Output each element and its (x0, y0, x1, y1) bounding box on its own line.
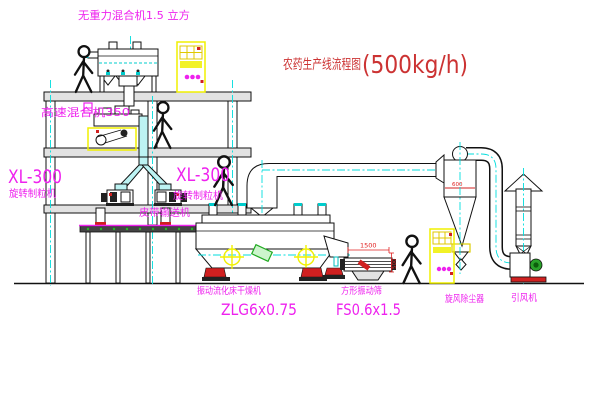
label-dryer-model: ZLG6x0.75 (221, 300, 297, 319)
label-granulator-left-name: 旋转制粒机 (9, 187, 56, 200)
process-flow-diagram: 无重力混合机1.5 立方 高速混合机350 XL-300 旋转制粒机 XL-30… (0, 0, 600, 403)
belt-conveyor (79, 208, 199, 283)
label-belt-conveyor: 皮带输送机 (139, 206, 190, 219)
label-granulator-left-model: XL-300 (8, 166, 62, 188)
label-gravity-free-mixer: 无重力混合机1.5 立方 (78, 8, 190, 22)
label-high-speed-mixer: 高速混合机350 (41, 105, 130, 119)
indicator-lights (185, 75, 201, 80)
page-title-capacity: (500kg/h) (362, 50, 468, 79)
label-dryer-name: 振动流化床干燥机 (197, 285, 261, 297)
induced-draft-fan (510, 253, 546, 282)
cyclone-separator (444, 142, 476, 274)
granulator-chute (115, 157, 171, 190)
person-figure (403, 236, 421, 283)
drawing-canvas: 无重力混合机1.5 立方 高速混合机350 XL-300 旋转制粒机 XL-30… (0, 0, 600, 403)
label-granulator-right-model: XL-300 (176, 164, 230, 186)
label-fan: 引风机 (511, 292, 537, 304)
indicator-lights (437, 267, 451, 271)
label-cyclone: 旋风除尘器 (445, 293, 484, 305)
person-figure (75, 46, 92, 92)
dim-text-1500: 1500 (360, 242, 377, 250)
page-title: 农药生产线流程图 (283, 57, 361, 73)
dim-text-600: 600 (452, 182, 463, 188)
control-cabinet-2 (430, 229, 454, 283)
dim-text-500: 500 (392, 258, 398, 269)
granulator-left (101, 190, 134, 206)
label-screen-model: FS0.6x1.5 (336, 300, 401, 319)
label-screen-name: 方形振动筛 (341, 285, 382, 297)
control-cabinet-1 (177, 42, 205, 92)
label-granulator-right-name: 旋转制粒机 (173, 189, 223, 202)
